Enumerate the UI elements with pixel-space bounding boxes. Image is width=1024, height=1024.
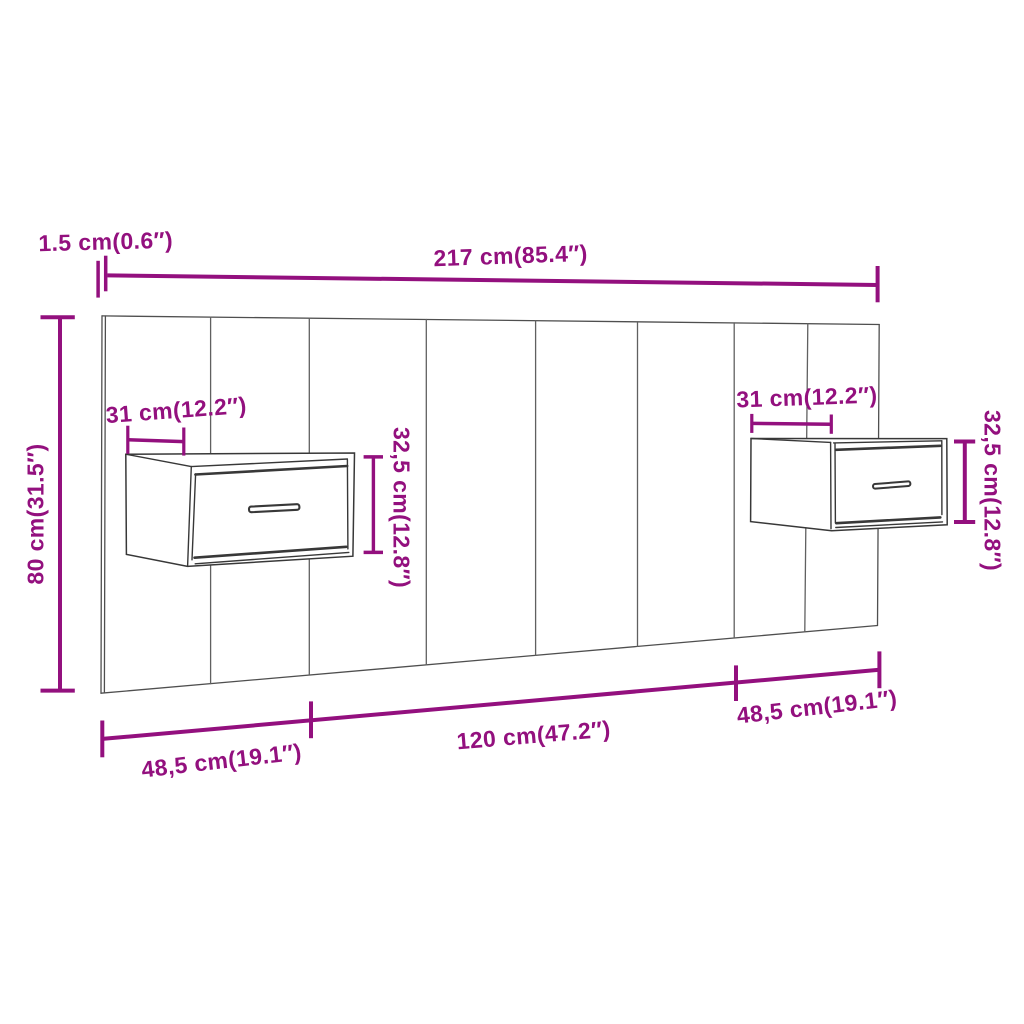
svg-text:31 cm(12.2″): 31 cm(12.2″): [736, 382, 878, 413]
svg-text:32,5 cm(12.8″): 32,5 cm(12.8″): [389, 427, 415, 588]
svg-text:217 cm(85.4″): 217 cm(85.4″): [433, 240, 588, 271]
svg-text:80 cm(31.5″): 80 cm(31.5″): [23, 443, 49, 584]
svg-text:32,5 cm(12.8″): 32,5 cm(12.8″): [980, 410, 1006, 571]
svg-text:1.5 cm(0.6″): 1.5 cm(0.6″): [38, 227, 173, 257]
